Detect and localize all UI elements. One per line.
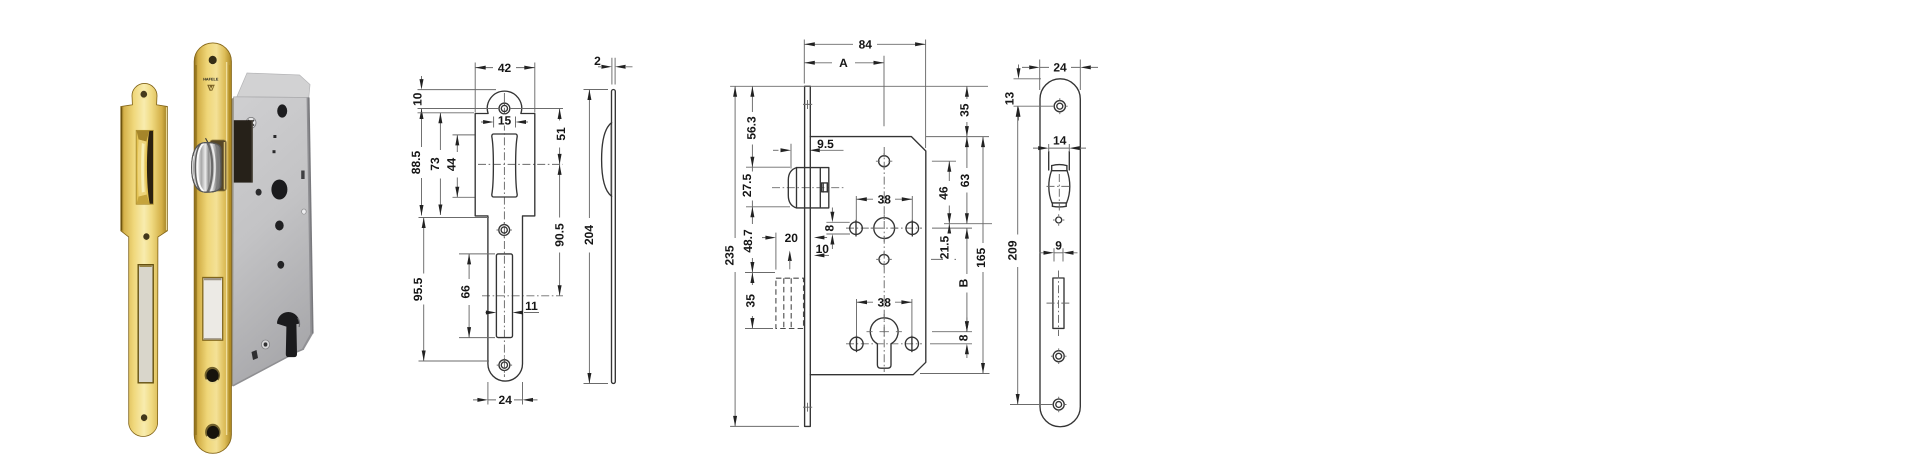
svg-text:HAFELE: HAFELE (203, 78, 219, 82)
svg-text:84: 84 (859, 38, 873, 52)
svg-text:90.5: 90.5 (552, 223, 566, 247)
svg-text:13: 13 (1003, 92, 1017, 106)
svg-text:88.5: 88.5 (409, 150, 423, 174)
svg-text:B: B (956, 278, 970, 287)
svg-text:20: 20 (785, 231, 799, 245)
svg-text:38: 38 (878, 296, 892, 310)
svg-text:24: 24 (499, 393, 513, 407)
svg-text:35: 35 (743, 294, 757, 308)
svg-text:95.5: 95.5 (411, 277, 425, 301)
svg-text:56.3: 56.3 (745, 116, 759, 140)
svg-text:9: 9 (1055, 238, 1062, 252)
svg-text:15: 15 (498, 113, 512, 127)
svg-text:204: 204 (582, 225, 596, 245)
svg-text:11: 11 (525, 299, 538, 313)
svg-text:2: 2 (594, 54, 601, 68)
svg-text:9.5: 9.5 (817, 137, 834, 151)
svg-text:165: 165 (974, 247, 988, 267)
svg-text:66: 66 (458, 285, 472, 299)
svg-text:51: 51 (554, 127, 568, 141)
svg-text:21.5: 21.5 (937, 235, 951, 259)
svg-text:38: 38 (878, 193, 892, 207)
svg-text:73: 73 (428, 157, 442, 171)
svg-text:14: 14 (1053, 133, 1067, 147)
svg-text:8: 8 (822, 225, 836, 232)
svg-text:46: 46 (937, 186, 951, 200)
svg-text:10: 10 (411, 92, 425, 106)
svg-text:63: 63 (958, 174, 972, 188)
svg-text:27.5: 27.5 (740, 173, 754, 197)
svg-text:10: 10 (816, 242, 830, 256)
svg-text:235: 235 (722, 245, 736, 265)
svg-text:48.7: 48.7 (741, 229, 755, 253)
svg-text:209: 209 (1005, 240, 1019, 260)
svg-text:24: 24 (1053, 61, 1067, 75)
svg-text:44: 44 (445, 158, 459, 172)
svg-text:42: 42 (498, 61, 512, 75)
svg-text:A: A (839, 56, 848, 70)
svg-text:8: 8 (957, 334, 971, 341)
svg-text:35: 35 (958, 103, 972, 117)
